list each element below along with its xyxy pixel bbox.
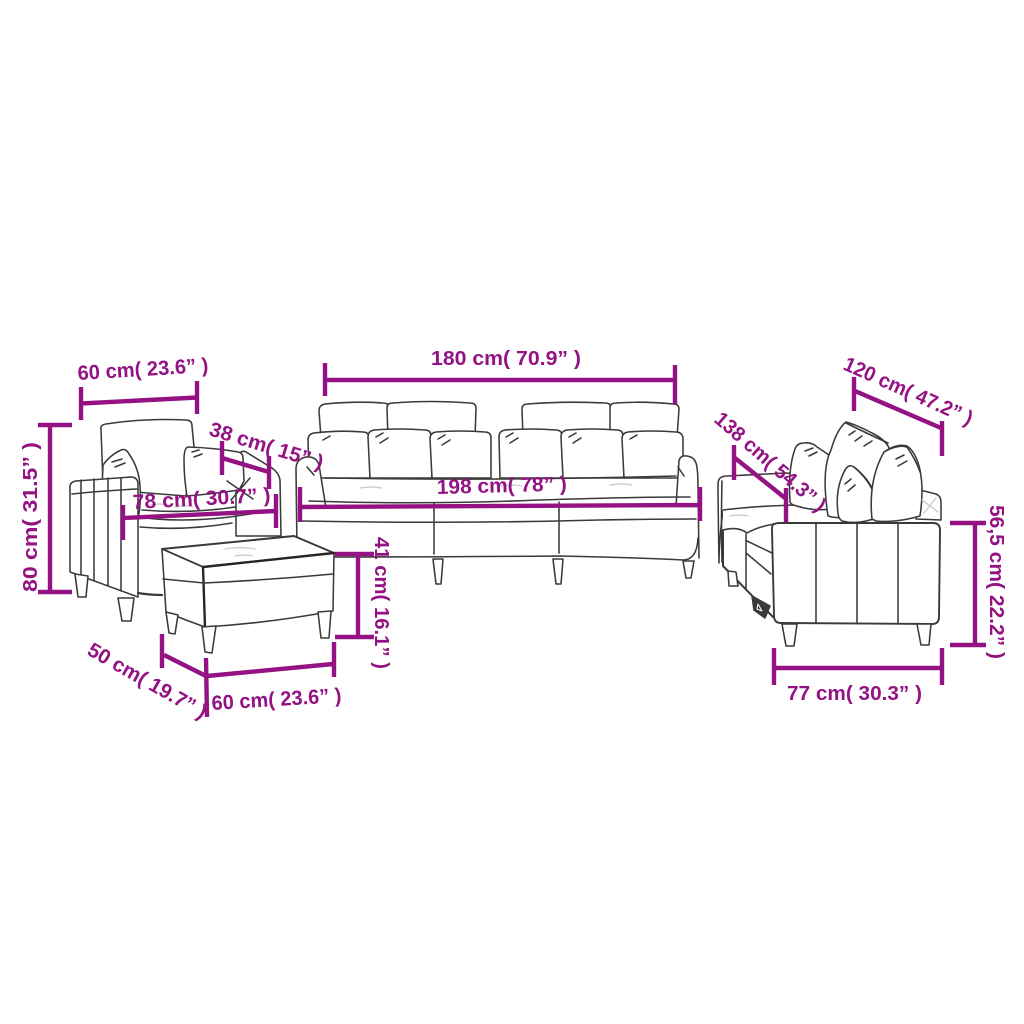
- svg-text:80 cm( 31.5” ): 80 cm( 31.5” ): [19, 442, 42, 592]
- svg-text:198 cm( 78” ): 198 cm( 78” ): [437, 473, 568, 499]
- svg-text:41 cm( 16.1” ): 41 cm( 16.1” ): [370, 537, 393, 669]
- svg-text:56,5 cm( 22.2” ): 56,5 cm( 22.2” ): [985, 505, 1008, 659]
- svg-text:77 cm( 30.3” ): 77 cm( 30.3” ): [787, 682, 922, 705]
- svg-text:180 cm( 70.9” ): 180 cm( 70.9” ): [431, 347, 581, 370]
